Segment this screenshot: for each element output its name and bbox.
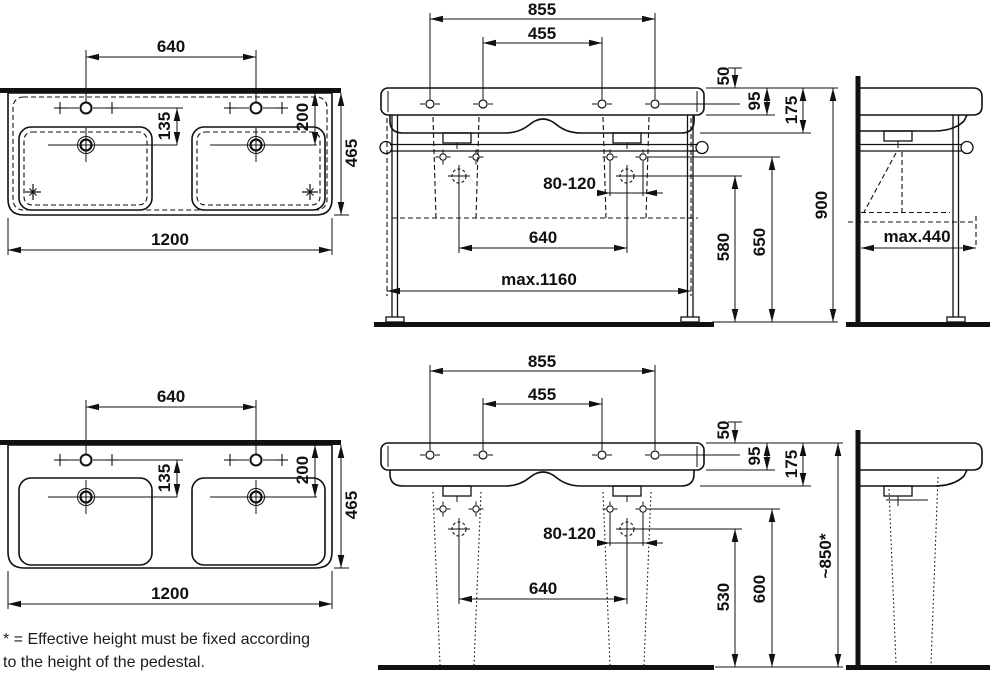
dim-label: 640 bbox=[157, 37, 185, 56]
technical-drawing-sheet: 640 135 200 465 1200 bbox=[0, 0, 1000, 681]
drain-stub bbox=[613, 486, 641, 496]
tap-hole-mark bbox=[276, 454, 288, 466]
dim-label: 200 bbox=[293, 103, 312, 131]
basin-body-side bbox=[861, 115, 968, 131]
dim-label: 530 bbox=[714, 583, 733, 611]
basin-body bbox=[390, 115, 694, 133]
drain-stub bbox=[884, 131, 912, 141]
view-side-frame: max.440 bbox=[846, 76, 990, 326]
tap-hole-mark bbox=[276, 102, 288, 114]
dim-label: 465 bbox=[342, 491, 361, 519]
dim-supply-range: 80-120 bbox=[543, 163, 663, 196]
dim-label: 640 bbox=[157, 387, 185, 406]
pedestal-side bbox=[889, 489, 896, 664]
dim-label: 50 bbox=[714, 67, 733, 86]
dim-label: 1200 bbox=[151, 584, 189, 603]
dim-width: 1200 bbox=[8, 571, 332, 609]
basin-body-side bbox=[861, 470, 968, 486]
dim-label: 175 bbox=[782, 96, 801, 124]
tap-hole-mark bbox=[224, 102, 236, 114]
view-plan-pedestal: 640 135 200 465 1200 bbox=[0, 387, 361, 609]
drawing-canvas: 640 135 200 465 1200 bbox=[0, 0, 1000, 681]
dim-width: 1200 bbox=[8, 218, 332, 255]
dim-label: 80-120 bbox=[543, 524, 596, 543]
fixing-point bbox=[636, 502, 651, 517]
rim-fixing-hole bbox=[420, 451, 440, 459]
dim-stack-right: 50 95 175 580 650 900 bbox=[700, 67, 838, 322]
dim-stack-right: 50 95 175 530 600 ~850* bbox=[700, 421, 843, 667]
dim-label: 80-120 bbox=[543, 174, 596, 193]
view-side-pedestal bbox=[846, 430, 990, 669]
basin-body bbox=[390, 470, 694, 486]
fixing-point bbox=[469, 150, 484, 165]
tap-hole bbox=[251, 103, 262, 114]
fixing-point bbox=[469, 502, 484, 517]
dim-label: 455 bbox=[528, 24, 556, 43]
dim-label: 600 bbox=[750, 575, 769, 603]
drain-stub bbox=[613, 133, 641, 143]
towel-rail-end bbox=[380, 142, 392, 154]
view-plan-frame: 640 135 200 465 1200 bbox=[0, 37, 361, 255]
drain-stub bbox=[443, 133, 471, 143]
footnote-line-2: to the height of the pedestal. bbox=[3, 654, 205, 671]
tap-hole-mark bbox=[54, 102, 66, 114]
dim-depth: 465 bbox=[334, 93, 361, 215]
fixing-point bbox=[436, 502, 451, 517]
pedestal-right bbox=[603, 492, 610, 665]
dim-label: 175 bbox=[782, 450, 801, 478]
overflow-mark bbox=[302, 184, 318, 200]
dim-rim-to-drain: 200 bbox=[293, 445, 315, 497]
dim-label: 95 bbox=[745, 447, 764, 466]
basin-rim-side bbox=[861, 88, 983, 115]
towel-rail-end bbox=[961, 142, 973, 154]
dim-label: 465 bbox=[342, 139, 361, 167]
dim-label: 455 bbox=[528, 385, 556, 404]
supply-connection bbox=[448, 165, 470, 187]
pedestal-left bbox=[433, 492, 440, 665]
drain-stub bbox=[884, 486, 912, 496]
drain-stub bbox=[443, 486, 471, 496]
dim-label: 200 bbox=[293, 456, 312, 484]
dim-label: 640 bbox=[529, 228, 557, 247]
fixing-point bbox=[436, 150, 451, 165]
dim-label: max.1160 bbox=[501, 270, 577, 289]
tap-hole bbox=[81, 455, 92, 466]
view-front-pedestal: 855 455 80-120 640 50 95 bbox=[378, 352, 843, 668]
dim-bowl-spacing: 640 bbox=[459, 537, 627, 604]
fixing-point bbox=[603, 502, 618, 517]
towel-rail-end bbox=[696, 142, 708, 154]
basin-outline bbox=[8, 445, 332, 568]
rim-fixing-hole bbox=[592, 100, 612, 108]
leg-foot bbox=[681, 317, 699, 322]
view-front-frame: 855 455 80-120 640 max.1160 bbox=[374, 0, 838, 325]
tap-hole-mark bbox=[54, 454, 66, 466]
footnote: * = Effective height must be fixed accor… bbox=[3, 631, 310, 671]
dim-label: 855 bbox=[528, 0, 556, 19]
tap-hole bbox=[251, 455, 262, 466]
rim-fixing-hole bbox=[473, 100, 493, 108]
dim-label: 650 bbox=[750, 228, 769, 256]
rim-fixing-hole bbox=[420, 100, 440, 108]
rim-fixing-hole bbox=[592, 451, 612, 459]
tap-hole-mark bbox=[224, 454, 236, 466]
leg-foot bbox=[386, 317, 404, 322]
dim-inner-holes: 455 bbox=[483, 385, 602, 450]
dim-label: ~850* bbox=[816, 533, 835, 578]
basin-rim bbox=[381, 443, 704, 470]
tap-hole-mark bbox=[106, 102, 118, 114]
leg-foot bbox=[947, 317, 965, 322]
dim-label: 135 bbox=[155, 464, 174, 492]
tap-hole bbox=[81, 103, 92, 114]
dim-rim-to-drain: 200 bbox=[293, 93, 315, 145]
supply-connection bbox=[616, 165, 638, 187]
dim-label: 135 bbox=[155, 112, 174, 140]
basin-outline bbox=[8, 93, 332, 215]
supply-connection bbox=[616, 518, 638, 540]
dim-label: 50 bbox=[714, 421, 733, 440]
rim-fixing-hole bbox=[473, 451, 493, 459]
dim-label: 95 bbox=[745, 92, 764, 111]
basin-rim-side bbox=[861, 443, 983, 470]
dim-label: 1200 bbox=[151, 230, 189, 249]
fixing-point bbox=[603, 150, 618, 165]
dim-outer-holes: 855 bbox=[430, 0, 655, 99]
tap-hole-mark bbox=[106, 454, 118, 466]
dim-label: 855 bbox=[528, 352, 556, 371]
basin-rim bbox=[381, 88, 704, 115]
dim-label: 580 bbox=[714, 233, 733, 261]
dim-label: 640 bbox=[529, 579, 557, 598]
supply-connection bbox=[448, 518, 470, 540]
dim-label: max.440 bbox=[883, 227, 950, 246]
dim-depth: 465 bbox=[334, 445, 361, 568]
overflow-mark bbox=[25, 184, 41, 200]
dim-label: 900 bbox=[812, 191, 831, 219]
footnote-line-1: * = Effective height must be fixed accor… bbox=[3, 631, 310, 648]
dim-supply-range: 80-120 bbox=[543, 515, 663, 546]
